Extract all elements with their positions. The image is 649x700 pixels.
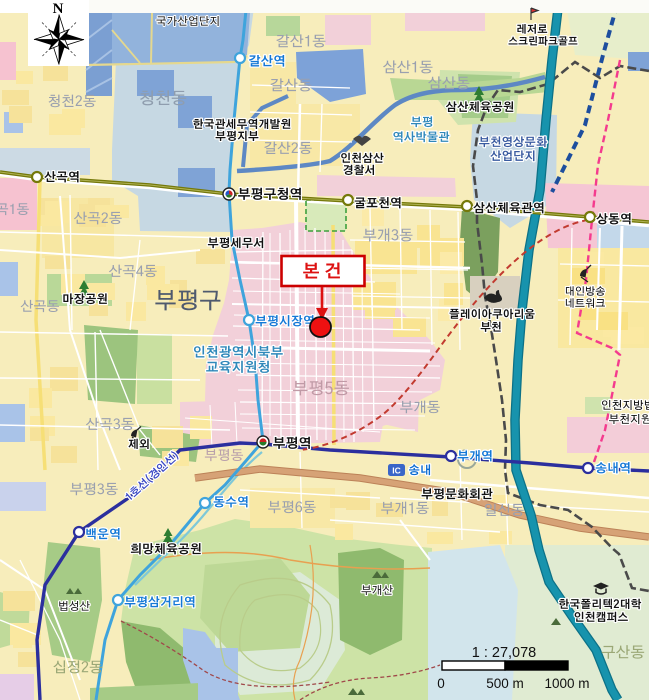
svg-text:1000 m: 1000 m: [544, 676, 589, 691]
svg-text:500 m: 500 m: [486, 676, 524, 691]
svg-text:IC: IC: [392, 466, 401, 476]
svg-text:N: N: [53, 1, 64, 17]
svg-text:1 : 27,078: 1 : 27,078: [472, 645, 537, 661]
svg-text:0: 0: [437, 676, 445, 691]
